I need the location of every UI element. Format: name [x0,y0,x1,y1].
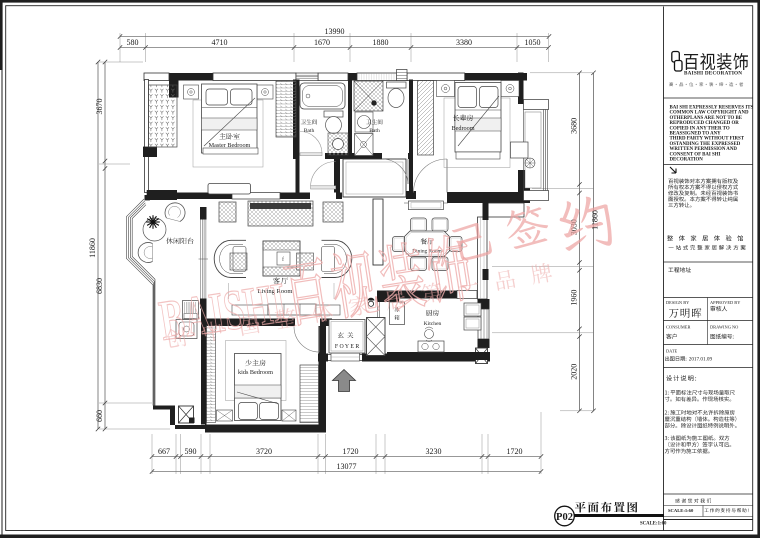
svg-text:3670: 3670 [95,99,104,115]
svg-text:Bath: Bath [304,128,315,134]
svg-text:F O Y E R: F O Y E R [335,344,360,350]
svg-text:1720: 1720 [343,447,359,456]
svg-text:11860: 11860 [88,238,97,258]
svg-text:1960: 1960 [570,290,579,306]
svg-text:3380: 3380 [456,38,472,47]
svg-text:DRAWING NO: DRAWING NO [710,325,738,330]
svg-text:SCALE:1:60: SCALE:1:60 [640,522,667,527]
svg-text:1880: 1880 [373,38,389,47]
svg-text:580: 580 [127,38,139,47]
svg-text:3720: 3720 [256,447,272,456]
svg-text:DATE: DATE [666,349,678,354]
svg-text:Bath: Bath [369,128,380,134]
svg-text:3230: 3230 [426,447,442,456]
svg-text:P02: P02 [556,512,573,523]
svg-text:DECORATION: DECORATION [670,158,704,163]
svg-text:APPROVED BY: APPROVED BY [710,300,741,305]
svg-text:Master Bedroom: Master Bedroom [209,142,251,149]
svg-text:Bedroom: Bedroom [451,125,474,132]
svg-text:kids Bedroom: kids Bedroom [238,369,273,376]
svg-text:3680: 3680 [570,118,579,134]
svg-text:f: f [282,256,284,263]
svg-text:DESIGN BY: DESIGN BY [666,300,690,305]
svg-text:Kitchen: Kitchen [424,321,442,327]
svg-text:1050: 1050 [525,38,541,47]
svg-text:SCALE:1:60: SCALE:1:60 [668,508,694,513]
svg-text:13990: 13990 [325,27,345,36]
svg-text:2017.01.09: 2017.01.09 [689,357,713,363]
svg-text:1720: 1720 [507,447,523,456]
svg-text:2020: 2020 [570,364,579,380]
svg-text:1670: 1670 [314,38,330,47]
svg-text:590: 590 [185,447,197,456]
svg-text:660: 660 [95,410,104,422]
svg-text:13077: 13077 [337,462,357,471]
svg-text:667: 667 [158,447,170,456]
svg-text:BAISHI DECORATION: BAISHI DECORATION [684,71,742,77]
svg-text:4710: 4710 [212,38,228,47]
svg-text:CONSUMER: CONSUMER [666,325,690,330]
svg-text:6830: 6830 [95,278,104,294]
